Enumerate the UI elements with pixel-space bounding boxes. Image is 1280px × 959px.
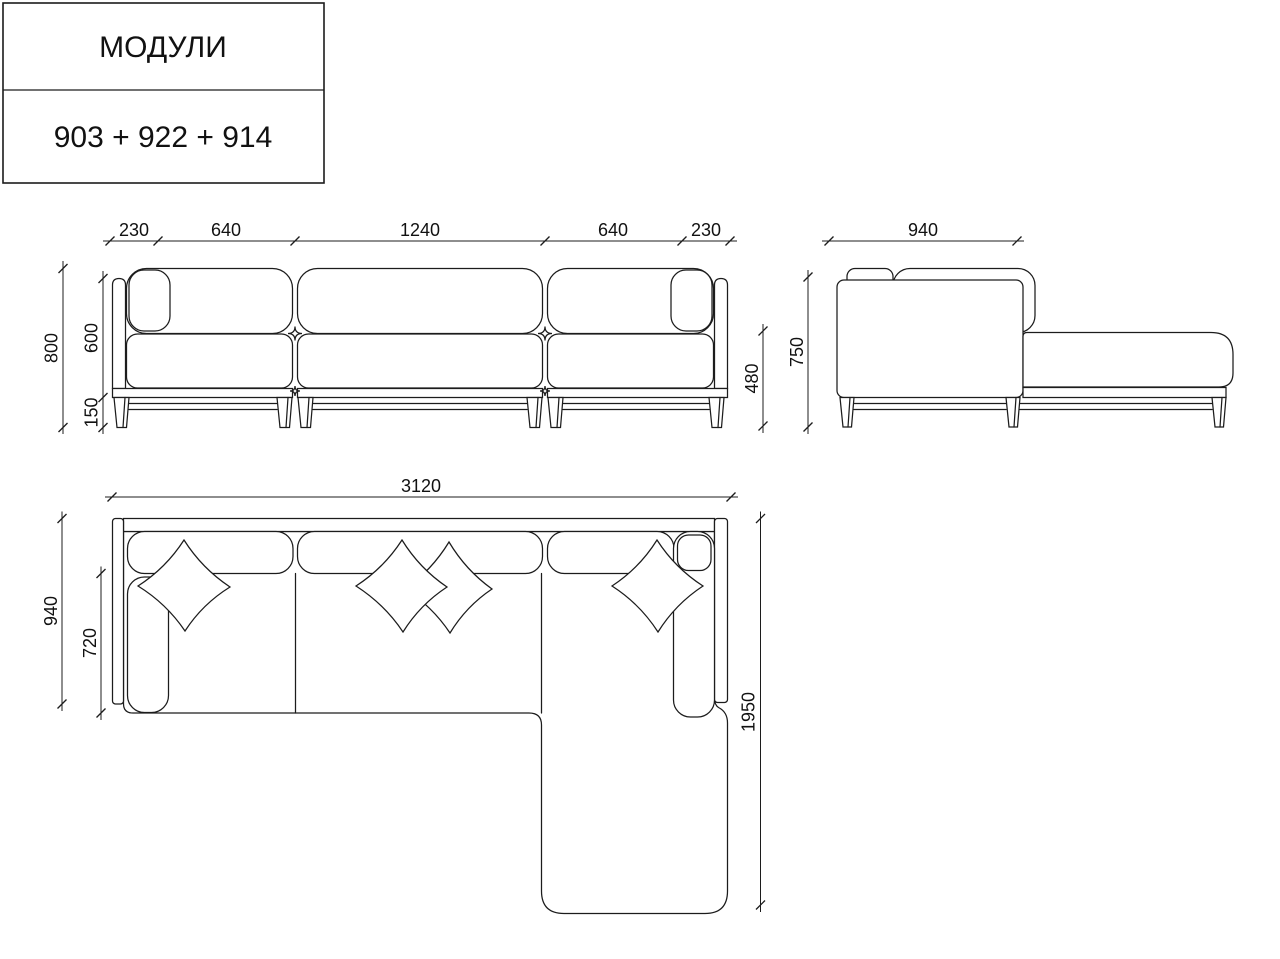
plan-back-cushion-left xyxy=(128,532,294,574)
dim-front-230-right: 230 xyxy=(691,220,721,240)
sofa-plan xyxy=(113,519,728,914)
title-block-border xyxy=(3,3,324,183)
dim-front-seat-height: 480 xyxy=(742,363,762,393)
dim-front-1240: 1240 xyxy=(400,220,440,240)
drawing-page: МОДУЛИ 903 + 922 + 914 230 640 1240 640 … xyxy=(0,0,1280,959)
side-view: 940 750 xyxy=(787,220,1233,434)
front-stretchers xyxy=(129,404,709,410)
front-top-dimension: 230 640 1240 640 230 xyxy=(103,220,737,246)
plan-left-dimensions: 940 720 xyxy=(41,512,106,721)
plan-right-dimension: 1950 xyxy=(739,512,766,913)
dim-front-640-left: 640 xyxy=(211,220,241,240)
technical-drawing: МОДУЛИ 903 + 922 + 914 230 640 1240 640 … xyxy=(0,0,1280,959)
front-left-arm-cushion xyxy=(129,270,170,331)
dim-side-depth: 940 xyxy=(908,220,938,240)
title-block-title: МОДУЛИ xyxy=(99,31,227,64)
side-stretchers xyxy=(854,404,1212,410)
dim-front-back-height: 600 xyxy=(82,323,102,353)
title-block: МОДУЛИ 903 + 922 + 914 xyxy=(3,3,324,183)
side-chaise-cushion xyxy=(1023,333,1233,388)
dim-front-640-right: 640 xyxy=(598,220,628,240)
front-seat-cushion-left xyxy=(127,334,293,388)
plan-corner-cushion xyxy=(678,535,712,571)
side-chaise-base xyxy=(1023,388,1226,398)
front-right-arm-panel xyxy=(715,279,728,389)
plan-view: 3120 xyxy=(41,476,765,914)
dim-side-total-height: 750 xyxy=(787,337,807,367)
side-legs xyxy=(840,398,1226,428)
front-right-arm-cushion xyxy=(671,270,712,331)
front-left-dimensions: 800 600 150 xyxy=(42,261,108,434)
plan-back-frame xyxy=(124,519,715,532)
front-legs xyxy=(114,398,724,428)
title-block-modules-code: 903 + 922 + 914 xyxy=(54,121,273,154)
plan-right-frame xyxy=(715,519,728,703)
side-top-dimension: 940 xyxy=(822,220,1024,246)
dim-front-230-left: 230 xyxy=(119,220,149,240)
dim-front-leg-height: 150 xyxy=(82,397,102,427)
dim-plan-total-depth: 940 xyxy=(41,596,61,626)
sofa-front-elevation xyxy=(113,269,728,428)
plan-top-dimension: 3120 xyxy=(105,476,738,502)
front-right-dimension: 480 xyxy=(742,324,768,433)
sofa-side-elevation xyxy=(837,269,1233,428)
front-base-bands xyxy=(113,389,728,398)
front-seat-cushion-middle xyxy=(298,334,543,388)
side-body-panel xyxy=(837,280,1023,398)
front-seat-cushion-right xyxy=(548,334,714,388)
dim-front-total-height: 800 xyxy=(42,333,62,363)
side-left-dimension: 750 xyxy=(787,270,813,434)
dim-plan-total-width: 3120 xyxy=(401,476,441,496)
dim-plan-chaise-length: 1950 xyxy=(739,692,759,732)
front-left-arm-panel xyxy=(113,279,126,389)
dim-plan-seat-depth: 720 xyxy=(80,628,100,658)
front-view: 230 640 1240 640 230 xyxy=(42,220,768,434)
front-back-cushion-middle xyxy=(298,269,543,334)
plan-left-frame xyxy=(113,519,124,705)
